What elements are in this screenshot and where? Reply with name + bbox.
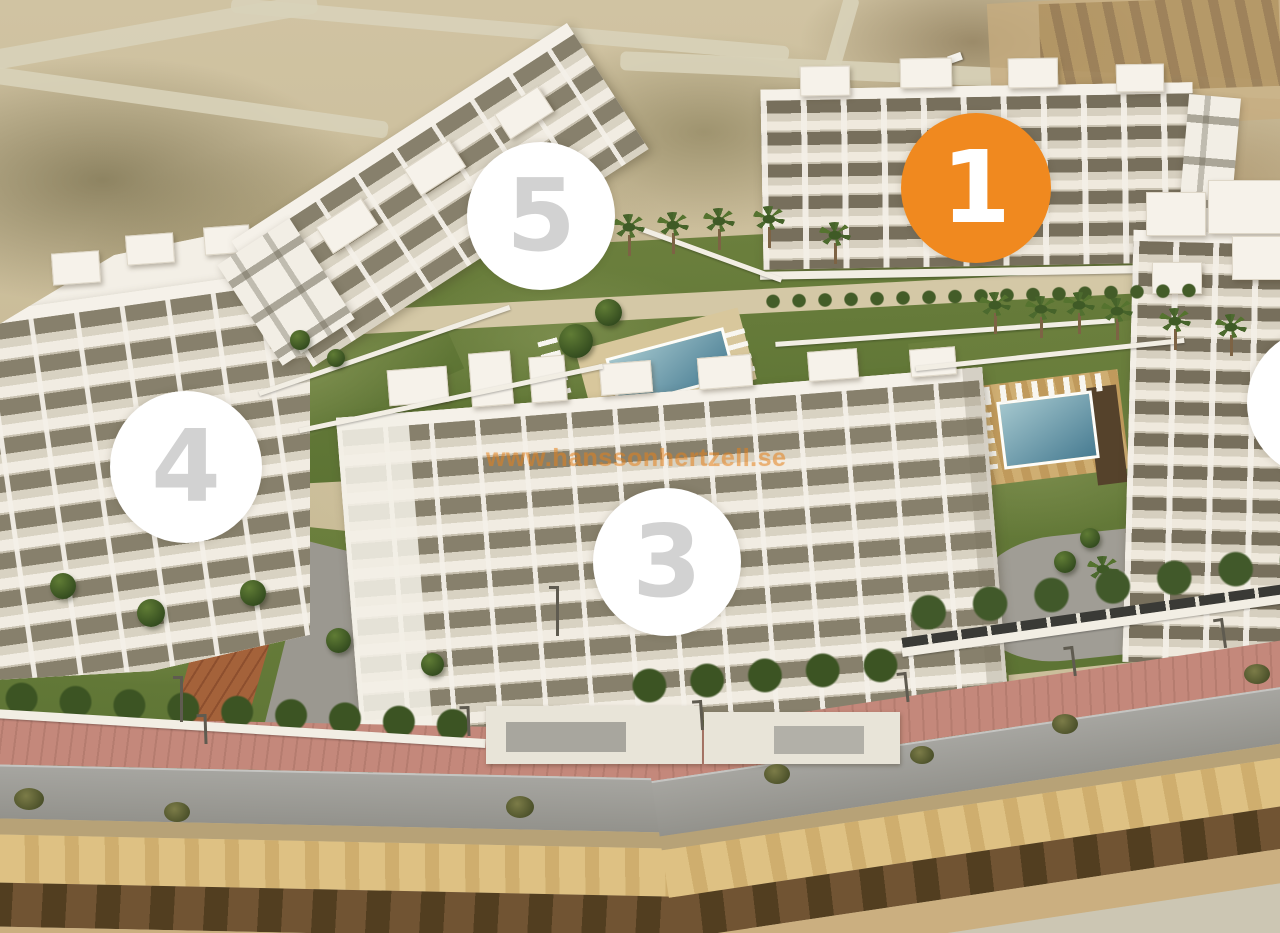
tree (421, 653, 444, 676)
phase-5-number: 5 (506, 166, 576, 266)
tree (595, 299, 622, 326)
phase-3-number: 3 (632, 512, 702, 612)
phase-4-number: 4 (151, 417, 221, 517)
building-right-penthouse (1208, 180, 1280, 234)
aerial-render-scene: www.hanssonhertzell.se 5 1 4 3 (0, 0, 1280, 933)
building-3-penthouse (807, 348, 859, 382)
building-right-penthouse (1146, 192, 1206, 236)
scrub-tuft (506, 796, 534, 818)
phase-1-marker[interactable]: 1 (901, 113, 1051, 263)
palm-tree (656, 212, 690, 254)
tree (240, 580, 266, 606)
palm-tree (1158, 308, 1192, 350)
scrub-tuft (1244, 664, 1270, 684)
scrub-tuft (164, 802, 190, 822)
building-4-penthouse (125, 232, 175, 265)
watermark-text: www.hanssonhertzell.se (486, 444, 786, 473)
tree (290, 330, 310, 350)
building-3-penthouse (468, 350, 514, 407)
scrub-tuft (764, 764, 790, 784)
tree (50, 573, 76, 599)
garden-lamp (556, 586, 559, 636)
palm-tree (978, 292, 1012, 334)
building-1-penthouse (800, 66, 851, 97)
palm-tree (612, 214, 646, 256)
phase-4-marker[interactable]: 4 (110, 391, 262, 543)
building-1-penthouse (1008, 58, 1059, 89)
gate-opening (506, 722, 626, 752)
palm-tree (752, 206, 786, 248)
scrub-tuft (14, 788, 44, 810)
tree (327, 349, 345, 367)
entrance-gate (486, 706, 702, 764)
gate-opening (774, 726, 864, 754)
entrance-gate (704, 712, 900, 764)
building-3-penthouse (599, 360, 653, 396)
building-3-penthouse (697, 354, 753, 390)
phase-3-marker[interactable]: 3 (593, 488, 741, 636)
tree (326, 628, 351, 653)
scrub-tuft (910, 746, 934, 764)
palm-tree (1024, 296, 1058, 338)
building-4-penthouse (51, 250, 101, 285)
tree (559, 324, 593, 358)
garden-lamp (180, 676, 183, 722)
building-right-penthouse (1232, 236, 1280, 280)
palm-tree (702, 208, 736, 250)
palm-tree (1062, 292, 1096, 334)
building-1-penthouse (1116, 64, 1164, 93)
building-1-penthouse (900, 58, 953, 89)
tree (1080, 528, 1100, 548)
phase-1-number: 1 (941, 138, 1011, 238)
palm-tree (1100, 298, 1134, 340)
palm-tree (1214, 314, 1248, 356)
phase-5-marker[interactable]: 5 (467, 142, 615, 290)
scrub-tuft (1052, 714, 1078, 734)
palm-tree (818, 222, 852, 264)
swimming-pool (996, 390, 1100, 469)
tree (137, 599, 165, 627)
